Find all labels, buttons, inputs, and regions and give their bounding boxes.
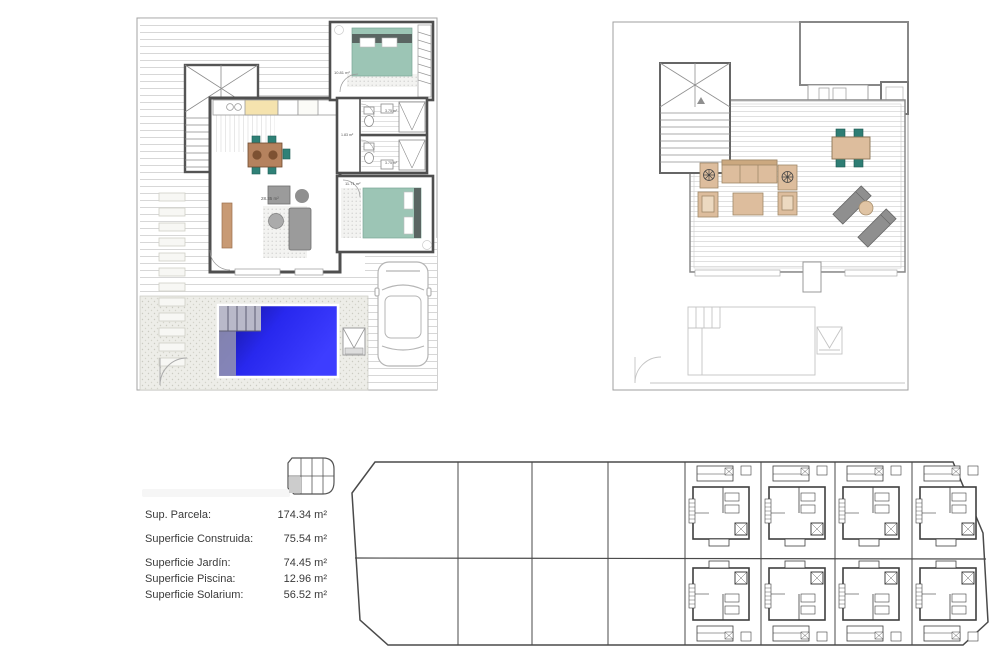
ground-floor-plan: 28.35 m² 10.81 m² 1.83 m² 3.75 m² 3.75 m…: [135, 12, 455, 392]
coffee-table: [733, 193, 763, 215]
living-kitchen: [210, 98, 340, 275]
side-table: [269, 214, 284, 229]
armchair: [268, 186, 290, 204]
key-plan-icon: [285, 456, 337, 498]
wardrobe: [418, 25, 431, 97]
pool-steps: [219, 306, 261, 331]
room-label-bedroom-main: 10.81 m²: [334, 70, 350, 75]
highlighted-plot: [289, 477, 301, 493]
room-label-living: 28.35 m²: [261, 196, 279, 201]
area-label: Superficie Piscina:: [145, 573, 249, 585]
bedroom-second: [337, 176, 433, 252]
area-value: 56.52 m²: [249, 589, 327, 601]
plant-icon: [782, 172, 793, 183]
area-label: Superficie Jardín:: [145, 557, 249, 569]
area-row-construida: Superficie Construida: 75.54 m²: [145, 533, 327, 545]
outdoor-shower: [343, 328, 365, 355]
area-row-piscina: Superficie Piscina: 12.96 m²: [145, 573, 327, 585]
area-row-jardin: Superficie Jardín: 74.45 m²: [145, 557, 327, 569]
area-row-solarium: Superficie Solarium: 56.52 m²: [145, 589, 327, 601]
car: [375, 262, 431, 366]
area-label: Sup. Parcela:: [145, 509, 249, 521]
bed-double: [363, 188, 421, 238]
site-plan: [345, 448, 995, 647]
sofa: [289, 208, 311, 250]
area-row-parcela: Sup. Parcela: 174.34 m²: [145, 509, 327, 521]
area-value: 74.45 m²: [249, 557, 327, 569]
bed-rug: [341, 188, 361, 238]
area-label: Superficie Construida:: [145, 533, 253, 545]
room-label-bedroom2: 11.71 m²: [345, 181, 361, 186]
room-label-hall: 1.83 m²: [341, 133, 354, 137]
faint-print-artifact: [142, 489, 290, 497]
swimming-pool: [218, 305, 338, 377]
area-value: 75.54 m²: [253, 533, 327, 545]
area-value: 174.34 m²: [249, 509, 327, 521]
kitchen-counter: [213, 100, 337, 115]
plant-icon: [704, 170, 715, 181]
area-value: 12.96 m²: [249, 573, 327, 585]
plant: [295, 189, 309, 203]
solarium-plan: [605, 12, 910, 392]
room-label-bath1: 3.75 m²: [385, 109, 398, 113]
dining-table: [832, 137, 870, 159]
area-label: Superficie Solarium:: [145, 589, 249, 601]
stair-bulkhead: [803, 262, 821, 292]
staircase: [660, 63, 730, 173]
sideboard: [222, 203, 232, 248]
bed-double: [352, 28, 412, 76]
areas-panel: Sup. Parcela: 174.34 m² Superficie Const…: [145, 505, 327, 605]
round-table: [859, 201, 873, 215]
room-label-bath2: 3.75 m²: [385, 161, 398, 165]
bedroom-main: [330, 22, 433, 100]
